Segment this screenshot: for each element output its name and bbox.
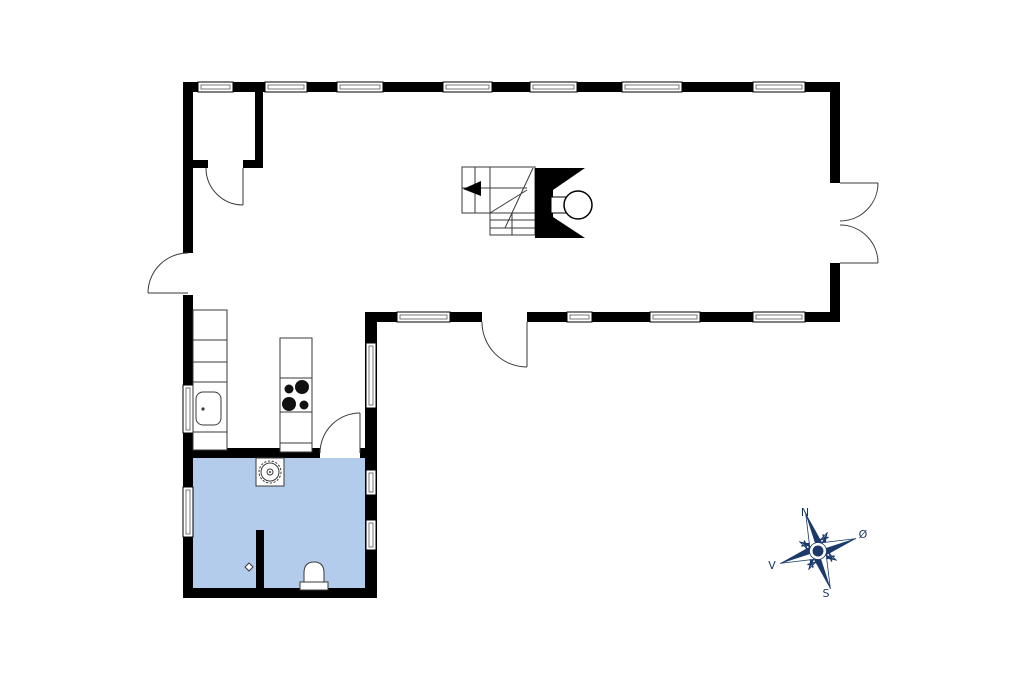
west-entrance-door-swing-icon (148, 253, 188, 293)
south-door-swing-icon (482, 322, 527, 367)
window-icon (443, 82, 492, 92)
entry-room-wall (255, 82, 263, 168)
window-icon (530, 82, 577, 92)
compass-label-south: S (823, 587, 830, 600)
compass-label-west: V (768, 559, 776, 572)
window-icon (397, 312, 450, 322)
window-icon (622, 82, 682, 92)
staircase-icon (462, 167, 535, 235)
window-icon (650, 312, 700, 322)
window-icon (366, 520, 376, 550)
wall-south-annex (183, 588, 375, 598)
washing-machine-icon (256, 458, 284, 486)
floor-plan: N Ø S V (0, 0, 1024, 682)
bathroom-door-swing-icon (320, 413, 360, 453)
fireplace-stove-icon (535, 168, 592, 238)
kitchen-counter-icon (193, 310, 227, 450)
kitchen-island-icon (280, 338, 312, 452)
window-icon (265, 82, 307, 92)
window-icon (183, 385, 193, 433)
entry-room-wall-stub (243, 160, 263, 168)
window-icon (753, 82, 805, 92)
east-double-door-icon (840, 183, 878, 263)
compass-rose-icon: N Ø S V (768, 501, 869, 602)
compass-label-north: N (801, 506, 809, 519)
window-icon (567, 312, 592, 322)
floor-plan-page: N Ø S V (0, 0, 1024, 682)
window-icon (198, 82, 233, 92)
entry-room-wall-stub (183, 160, 208, 168)
window-icon (366, 343, 376, 408)
bathroom-wall-stub (360, 448, 377, 458)
window-icon (183, 487, 193, 537)
compass-label-east: Ø (859, 528, 868, 541)
kitchen-sink-icon (196, 392, 221, 425)
entry-room-door-swing-icon (206, 168, 243, 205)
bathroom-partition-wall (256, 530, 264, 598)
window-icon (366, 470, 376, 495)
window-icon (337, 82, 383, 92)
window-icon (753, 312, 805, 322)
stair-direction-arrow-icon (463, 181, 481, 196)
